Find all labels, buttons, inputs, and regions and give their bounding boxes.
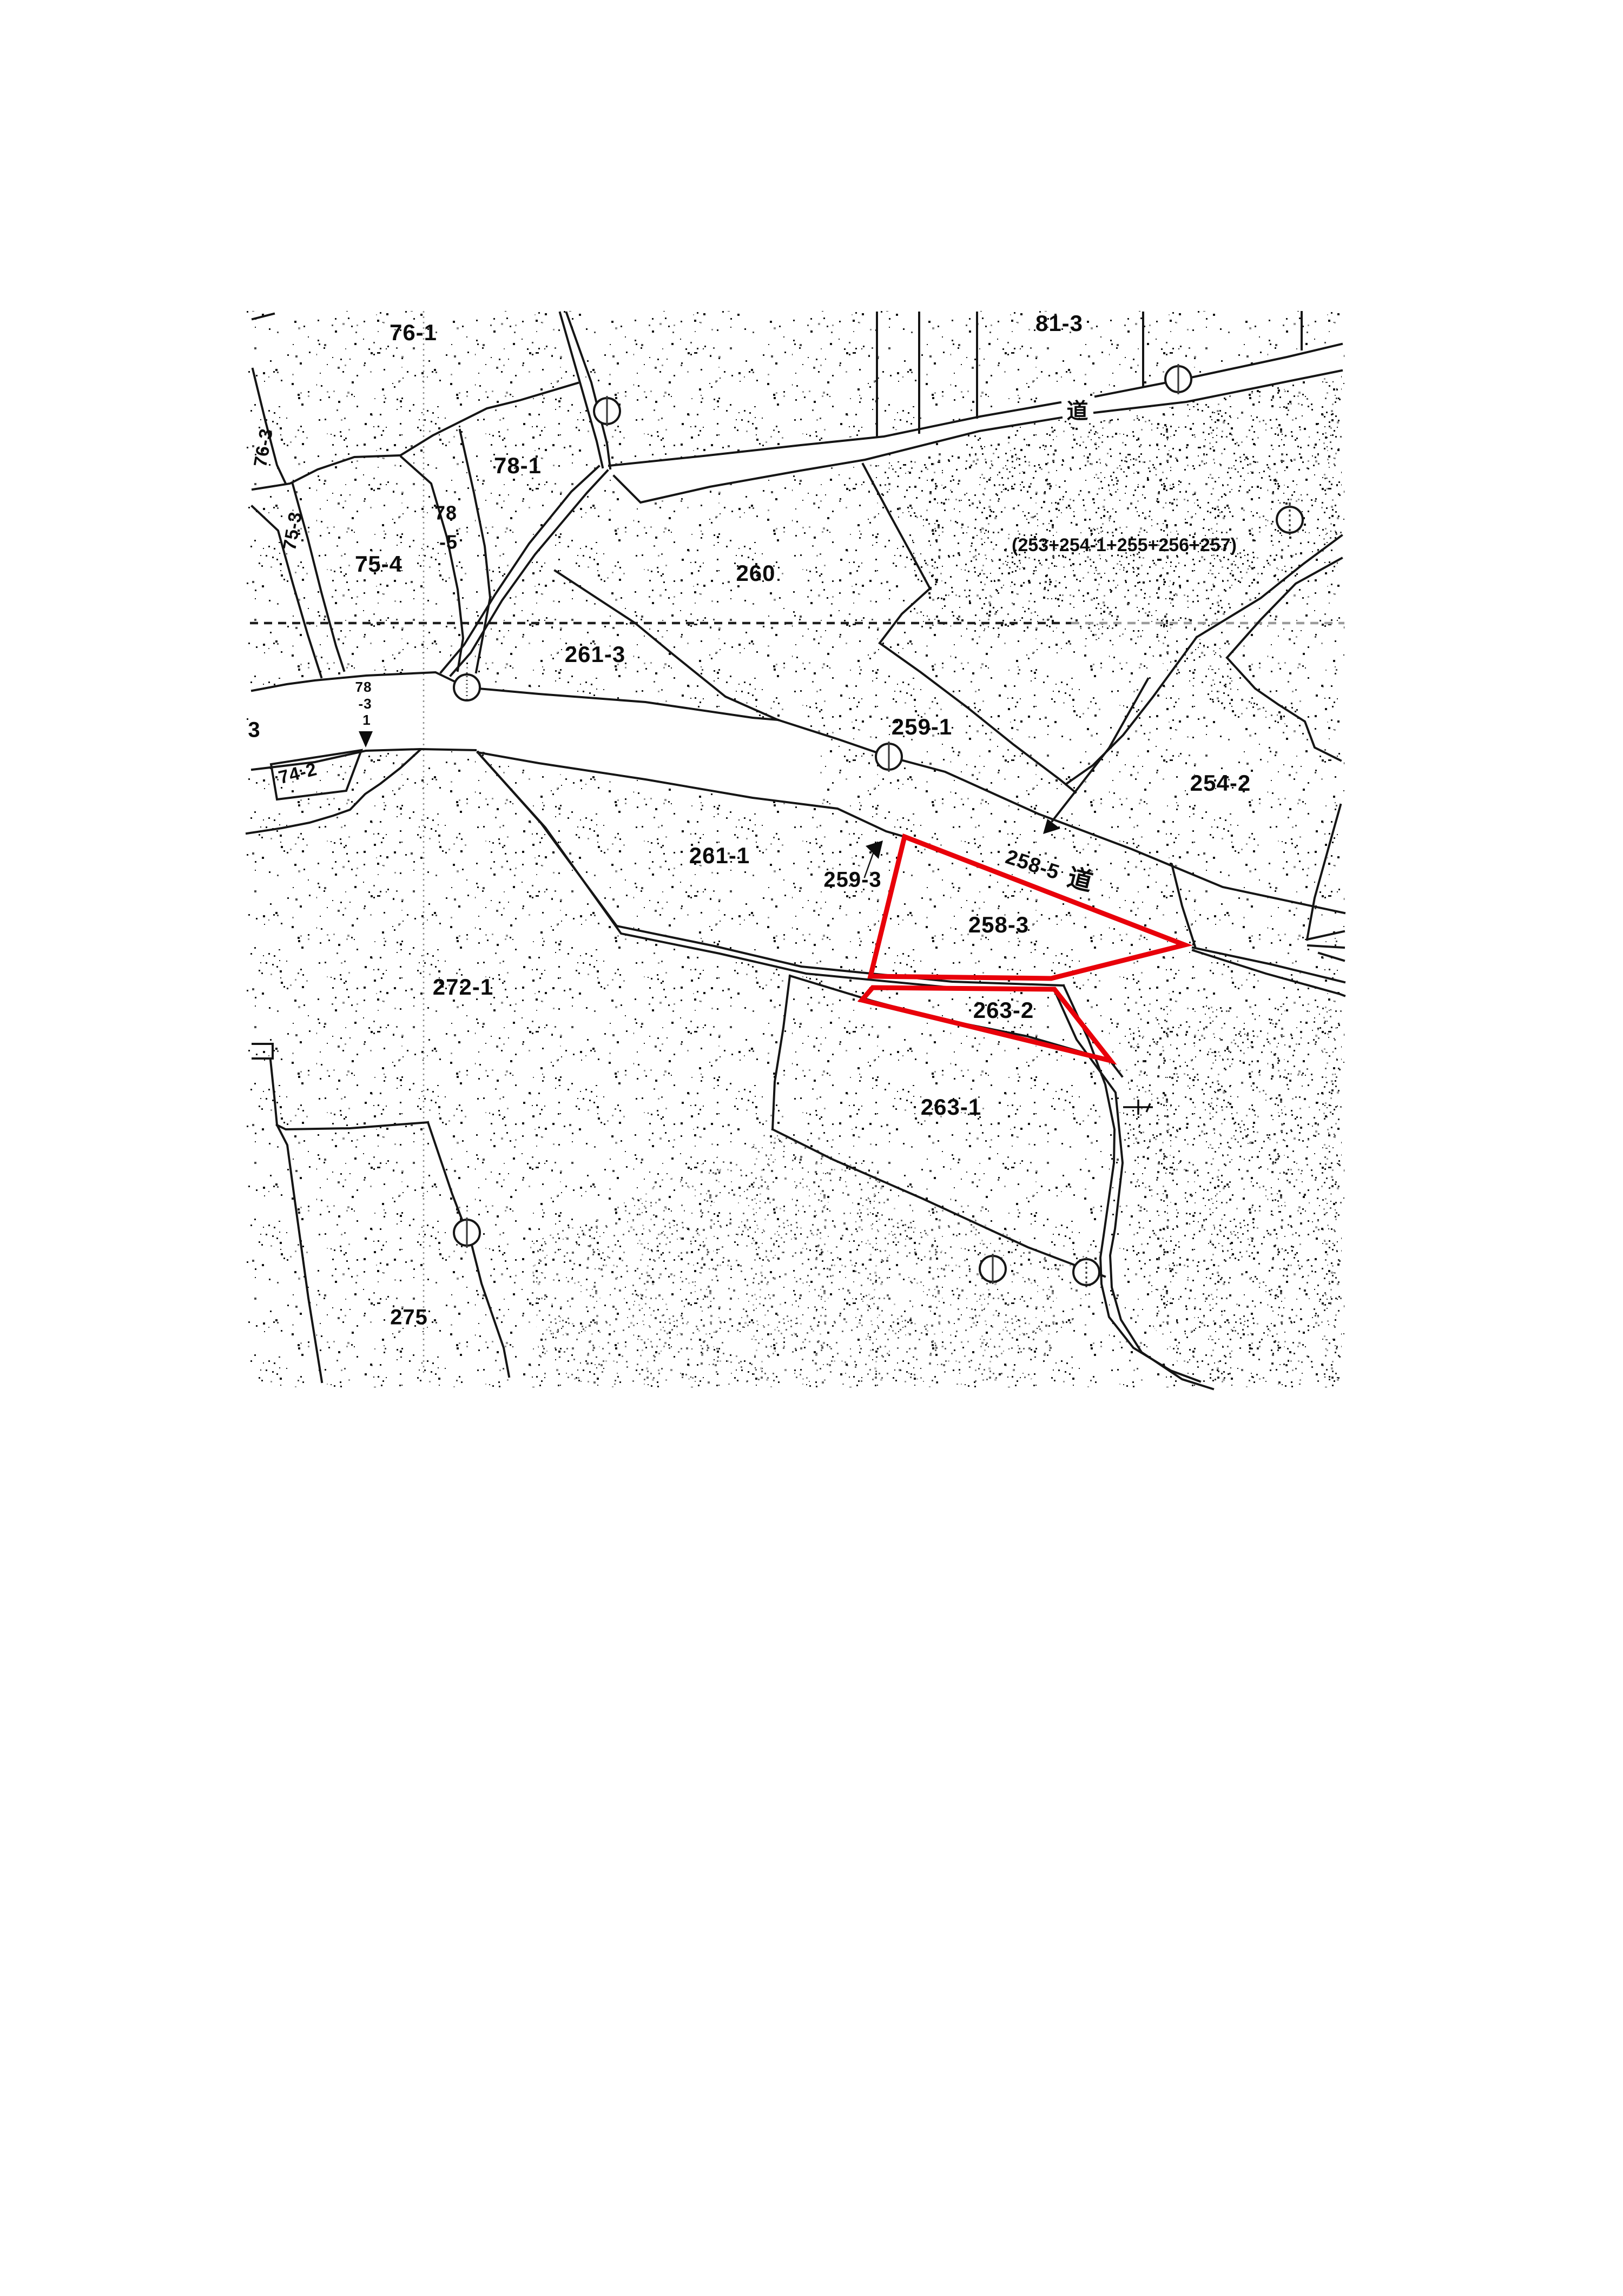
svg-text:(253+254-1+255+256+257): (253+254-1+255+256+257) <box>1012 535 1237 555</box>
svg-text:272-1: 272-1 <box>433 974 493 1000</box>
svg-text:-3: -3 <box>358 696 372 712</box>
svg-text:275: 275 <box>390 1306 428 1329</box>
svg-text:3: 3 <box>248 718 260 742</box>
svg-text:1: 1 <box>362 712 371 728</box>
svg-text:259-1: 259-1 <box>892 714 952 739</box>
svg-text:78: 78 <box>434 502 457 524</box>
svg-text:78-1: 78-1 <box>494 453 542 478</box>
svg-text:258-3: 258-3 <box>968 912 1029 937</box>
svg-text:261-3: 261-3 <box>565 641 625 667</box>
svg-text:254-2: 254-2 <box>1190 770 1251 796</box>
svg-text:259-3: 259-3 <box>823 868 881 892</box>
svg-text:-5: -5 <box>439 531 458 553</box>
svg-text:81-3: 81-3 <box>1035 310 1083 336</box>
svg-text:263-1: 263-1 <box>921 1094 981 1120</box>
svg-text:261-1: 261-1 <box>689 843 750 868</box>
svg-text:263-2: 263-2 <box>973 997 1034 1023</box>
svg-text:260: 260 <box>736 560 775 586</box>
svg-text:道: 道 <box>1067 400 1089 424</box>
svg-text:76-1: 76-1 <box>390 320 437 345</box>
svg-text:78: 78 <box>355 679 372 695</box>
svg-text:75-4: 75-4 <box>355 551 403 577</box>
